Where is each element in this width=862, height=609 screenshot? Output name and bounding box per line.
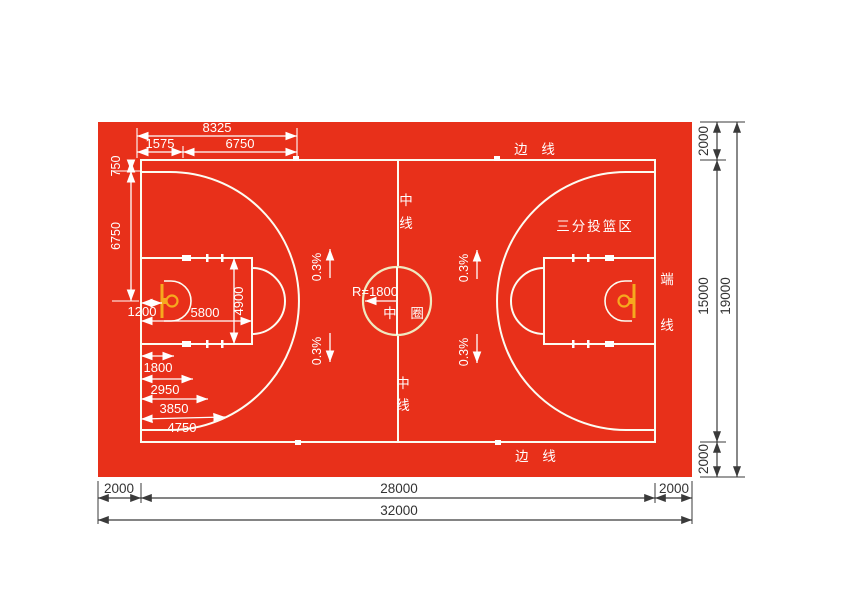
lane-mark [605,255,614,261]
lane-mark [572,340,575,348]
three-point-zone-label: 三分投篮区 [556,219,634,234]
lane-mark [206,254,209,262]
dim-top-arc-radius: 6750 [226,136,255,151]
dim-right-buffer-bottom: 2000 [696,444,711,474]
lane-mark [221,254,224,262]
sideline-mark [293,156,299,161]
dim-top-total: 8325 [203,120,232,135]
center-circle-radius-label: R=1800 [352,284,398,299]
slope-label-upper-left: 0.3% [310,253,324,282]
lane-mark [206,340,209,348]
lane-mark [587,340,590,348]
dim-bottom-buffer-left: 2000 [104,481,134,496]
dim-lane-mark-2: 2950 [151,382,180,397]
slope-label-lower-left: 0.3% [310,337,324,366]
lane-mark [572,254,575,262]
sideline-mark [495,440,501,445]
dim-bottom-total-length: 32000 [380,503,418,518]
dim-lane-mark-4: 4750 [168,420,197,435]
centerline-label-bottom-char-2: 线 [396,398,412,413]
endline-label-char-2: 线 [660,318,676,333]
dim-right-total-width: 19000 [718,277,733,315]
dim-key-length: 5800 [191,305,220,320]
endline-label-char-1: 端 [660,272,676,287]
lane-mark [182,341,191,347]
dim-key-width: 4900 [231,287,246,316]
dim-right-court-width: 15000 [696,277,711,315]
centerline-label-top-char-1: 中 [399,193,415,208]
dim-lane-mark-1: 1800 [144,360,173,375]
dim-top-basket-offset: 1575 [146,136,175,151]
sideline-label-top: 边 线 [514,142,560,157]
lane-mark [605,341,614,347]
basketball-court-plan: 8325 1575 6750 750 6750 1200 5800 4900 1… [0,0,862,609]
center-circle-label: 中 圈 [383,306,429,321]
dim-bottom-buffer-right: 2000 [659,481,689,496]
dim-left-half-width: 6750 [109,222,123,250]
dim-backboard-offset: 1200 [128,304,157,319]
slope-label-lower-right: 0.3% [457,338,471,367]
dim-lane-mark-3: 3850 [160,401,189,416]
court-diagram-svg: 8325 1575 6750 750 6750 1200 5800 4900 1… [0,0,862,609]
centerline-label-top-char-2: 线 [399,216,415,231]
slope-label-upper-right: 0.3% [457,254,471,283]
centerline-label-bottom-char-1: 中 [396,376,412,391]
dim-left-corner: 750 [109,156,123,177]
sideline-label-bottom: 边 线 [515,449,561,464]
lane-mark [182,255,191,261]
dim-right-buffer-top: 2000 [696,126,711,156]
sideline-mark [494,156,500,161]
dim-bottom-court-length: 28000 [380,481,418,496]
lane-mark [587,254,590,262]
sideline-mark [295,440,301,445]
lane-mark [221,340,224,348]
